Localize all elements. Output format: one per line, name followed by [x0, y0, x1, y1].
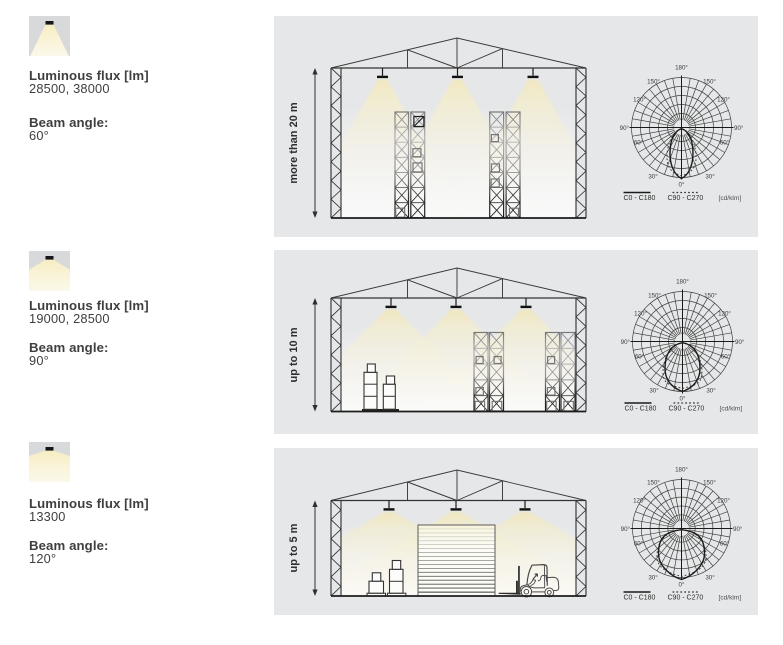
svg-text:120°: 120° — [633, 97, 646, 104]
svg-text:0°: 0° — [680, 396, 686, 403]
svg-text:180°: 180° — [675, 65, 688, 72]
svg-text:30°: 30° — [705, 174, 715, 181]
svg-text:90°: 90° — [621, 339, 631, 346]
svg-text:0°: 0° — [679, 582, 685, 589]
svg-text:more than 20 m: more than 20 m — [288, 102, 300, 184]
svg-text:C90 - C270: C90 - C270 — [669, 406, 705, 413]
svg-text:C0 - C180: C0 - C180 — [624, 195, 656, 202]
svg-text:150°: 150° — [647, 79, 660, 86]
svg-text:C90 - C270: C90 - C270 — [668, 595, 704, 602]
svg-text:90°: 90° — [621, 526, 631, 533]
svg-text:30°: 30° — [648, 575, 658, 582]
svg-text:60°: 60° — [635, 354, 645, 361]
svg-text:up to 5 m: up to 5 m — [288, 523, 300, 572]
svg-text:180°: 180° — [676, 279, 689, 286]
svg-text:150°: 150° — [703, 79, 716, 86]
svg-text:90°: 90° — [620, 125, 630, 132]
svg-text:90°: 90° — [735, 339, 745, 346]
svg-text:90°: 90° — [733, 526, 743, 533]
svg-text:[cd/klm]: [cd/klm] — [720, 406, 743, 413]
svg-text:60°: 60° — [634, 140, 644, 147]
svg-text:[cd/klm]: [cd/klm] — [719, 195, 742, 202]
svg-text:30°: 30° — [648, 174, 658, 181]
svg-text:C0 - C180: C0 - C180 — [625, 406, 657, 413]
svg-text:150°: 150° — [647, 480, 660, 487]
svg-text:90°: 90° — [734, 125, 744, 132]
svg-text:120°: 120° — [718, 311, 731, 318]
svg-text:180°: 180° — [675, 467, 688, 474]
svg-text:[cd/klm]: [cd/klm] — [719, 595, 742, 602]
svg-text:up to 10 m: up to 10 m — [288, 327, 300, 382]
svg-text:120°: 120° — [717, 97, 730, 104]
svg-text:30°: 30° — [706, 388, 716, 395]
svg-text:60°: 60° — [720, 140, 730, 147]
svg-text:60°: 60° — [634, 541, 644, 548]
svg-text:30°: 30° — [649, 388, 659, 395]
svg-text:120°: 120° — [717, 498, 730, 505]
svg-text:150°: 150° — [703, 480, 716, 487]
svg-text:150°: 150° — [704, 293, 717, 300]
svg-text:C90 - C270: C90 - C270 — [668, 195, 704, 202]
svg-text:120°: 120° — [633, 498, 646, 505]
svg-text:60°: 60° — [721, 354, 731, 361]
svg-text:120°: 120° — [634, 311, 647, 318]
svg-text:C0 - C180: C0 - C180 — [624, 595, 656, 602]
svg-text:60°: 60° — [720, 541, 730, 548]
svg-text:0°: 0° — [679, 182, 685, 189]
svg-text:150°: 150° — [648, 293, 661, 300]
svg-text:30°: 30° — [705, 575, 715, 582]
